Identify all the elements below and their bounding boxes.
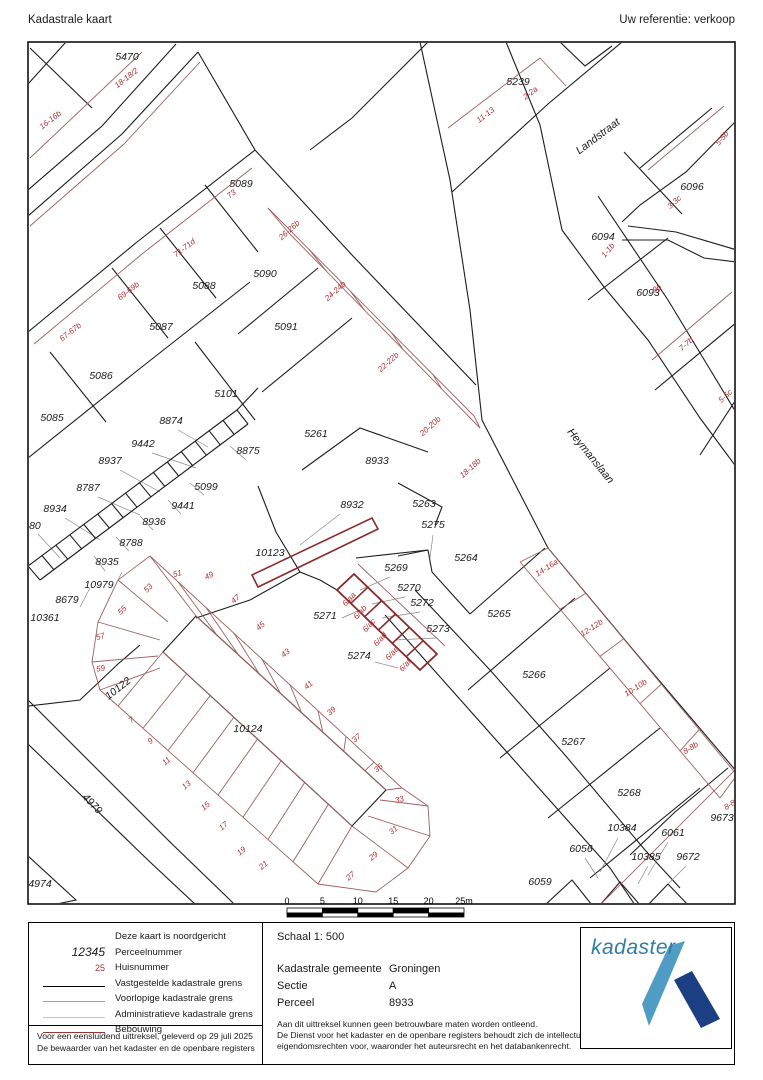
legend-item: Voorlopige kadastrale grens bbox=[29, 991, 262, 1007]
parcel-number-label: 8936 bbox=[142, 516, 166, 528]
parcel-number-label: 5268 bbox=[617, 787, 641, 799]
parcel-number-label: 980 bbox=[23, 520, 41, 532]
parcel-number-label: 8787 bbox=[76, 482, 101, 494]
parcel-number-label: 6096 bbox=[680, 181, 704, 193]
scale-bar-segment bbox=[429, 908, 464, 913]
legend-item: 25Huisnummer bbox=[29, 960, 262, 976]
disclaimer-line3: eigendomsrechten voor, waaronder het aut… bbox=[277, 1041, 592, 1052]
parcel-number-label: 4974 bbox=[28, 878, 52, 890]
parcel-number-label: 6059 bbox=[528, 876, 552, 888]
parcel-number-label: 10979 bbox=[84, 579, 113, 591]
legend-footnote: Voor een eensluidend uittreksel, gelever… bbox=[37, 1031, 255, 1054]
map-info-value: A bbox=[389, 978, 396, 995]
parcel-number-label: 5265 bbox=[487, 608, 511, 620]
parcel-number-label: 8937 bbox=[98, 455, 123, 467]
legend-box: Deze kaart is noordgericht 12345Perceeln… bbox=[28, 922, 735, 1065]
map-info-value: 8933 bbox=[389, 995, 413, 1012]
disclaimer-line2: De Dienst voor het kadaster en de openba… bbox=[277, 1030, 592, 1041]
parcel-number-label: 5263 bbox=[412, 498, 436, 510]
parcel-number-label: 5088 bbox=[192, 280, 216, 292]
scale-tick-label: 0 bbox=[284, 896, 289, 906]
legend-items: Deze kaart is noordgericht 12345Perceeln… bbox=[29, 929, 262, 1038]
parcel-number-label: 5272 bbox=[410, 597, 434, 609]
map-info-row: SectieA bbox=[277, 978, 440, 995]
parcel-number-label: 5470 bbox=[115, 51, 139, 63]
scale-bar-segment bbox=[358, 913, 393, 917]
parcel-number-label: 9672 bbox=[676, 851, 700, 863]
parcel-number-label: 6094 bbox=[591, 231, 615, 243]
scale-tick-label: 20 bbox=[424, 896, 434, 906]
parcel-number-label: 5274 bbox=[347, 650, 371, 662]
scale-bar-segment bbox=[429, 913, 464, 917]
parcel-number-label: 10124 bbox=[233, 723, 262, 735]
parcel-number-label: 8679 bbox=[55, 594, 79, 606]
legend-item-label: Vastgestelde kadastrale grens bbox=[115, 978, 242, 989]
legend-swatch bbox=[43, 980, 105, 987]
legend-footnote-line2: De bewaarder van het kadaster en de open… bbox=[37, 1043, 255, 1055]
cadastral-map: 5470523950896096609450905088609350875091… bbox=[0, 0, 763, 1080]
scale-tick-label: 5 bbox=[320, 896, 325, 906]
parcel-number-label: 5087 bbox=[149, 321, 174, 333]
parcel-number-label: 5269 bbox=[384, 562, 408, 574]
map-frame bbox=[28, 42, 735, 904]
parcel-number-label: 5091 bbox=[274, 321, 297, 333]
map-info-fields: Kadastrale gemeenteGroningenSectieAPerce… bbox=[277, 961, 440, 1012]
disclaimer-line1: Aan dit uittreksel kunnen geen betrouwba… bbox=[277, 1019, 592, 1030]
parcel-number-label: 5261 bbox=[304, 428, 327, 440]
legend-item-label: Voorlopige kadastrale grens bbox=[115, 993, 233, 1004]
map-info-label: Sectie bbox=[277, 978, 389, 995]
parcel-number-label: 9442 bbox=[131, 438, 155, 450]
legend-item-label: Huisnummer bbox=[115, 962, 169, 973]
parcel-number-label: 9441 bbox=[171, 500, 194, 512]
parcel-number-label: 6061 bbox=[661, 827, 684, 839]
scale-tick-label: 25m bbox=[455, 896, 473, 906]
disclaimer-text: Aan dit uittreksel kunnen geen betrouwba… bbox=[277, 1019, 592, 1052]
parcel-number-label: 5089 bbox=[229, 178, 253, 190]
parcel-number-label: 5267 bbox=[561, 736, 586, 748]
legend-swatch bbox=[43, 995, 105, 1002]
parcel-number-label: 10361 bbox=[30, 612, 59, 624]
parcel-number-label: 8874 bbox=[159, 415, 183, 427]
scale-tick-label: 15 bbox=[388, 896, 398, 906]
map-info-section: Schaal 1: 500 Kadastrale gemeenteGroning… bbox=[269, 923, 609, 1064]
parcel-number-label: 10385 bbox=[631, 851, 660, 863]
parcel-number-label: 5099 bbox=[194, 481, 218, 493]
parcel-number-label: 5273 bbox=[426, 623, 450, 635]
legend-swatch bbox=[43, 1011, 105, 1018]
legend-swatch: 25 bbox=[43, 963, 105, 973]
scale-bar-segment bbox=[287, 908, 322, 913]
parcel-number-label: 5086 bbox=[89, 370, 113, 382]
parcel-number-label: 5271 bbox=[313, 610, 336, 622]
legend-divider bbox=[262, 923, 263, 1064]
legend-item: Administratieve kadastrale grens bbox=[29, 1007, 262, 1023]
map-info-label: Perceel bbox=[277, 995, 389, 1012]
parcel-number-label: 5085 bbox=[40, 412, 64, 424]
parcel-number-label: 10123 bbox=[255, 547, 284, 559]
scale-bar-segment bbox=[322, 913, 357, 917]
parcel-number-label: 8934 bbox=[43, 503, 67, 515]
scale-bar-segment bbox=[322, 908, 357, 913]
parcel-number-label: 5090 bbox=[253, 268, 277, 280]
legend-item-label: Administratieve kadastrale grens bbox=[115, 1009, 253, 1020]
scale-bar-segment bbox=[358, 908, 393, 913]
parcel-number-label: 8932 bbox=[340, 499, 364, 511]
parcel-number-label: 5101 bbox=[214, 388, 237, 400]
map-info-value: Groningen bbox=[389, 961, 440, 978]
scale-text: Schaal 1: 500 bbox=[277, 931, 344, 943]
legend-swatch: 12345 bbox=[43, 945, 105, 959]
parcel-number-label: 9673 bbox=[710, 812, 734, 824]
map-info-row: Perceel8933 bbox=[277, 995, 440, 1012]
scale-bar-segment bbox=[393, 908, 428, 913]
map-info-row: Kadastrale gemeenteGroningen bbox=[277, 961, 440, 978]
legend-north-note: Deze kaart is noordgericht bbox=[29, 929, 262, 945]
kadaster-logo-text: kadaster bbox=[591, 936, 676, 960]
parcel-number-label: 5266 bbox=[522, 669, 546, 681]
parcel-number-label: 8933 bbox=[365, 455, 389, 467]
parcel-number-label: 5270 bbox=[397, 582, 421, 594]
map-info-label: Kadastrale gemeente bbox=[277, 961, 389, 978]
parcel-number-label: 5275 bbox=[421, 519, 445, 531]
parcel-number-label: 8875 bbox=[236, 445, 260, 457]
legend-footnote-line1: Voor een eensluidend uittreksel, gelever… bbox=[37, 1031, 255, 1043]
legend-item: 12345Perceelnummer bbox=[29, 945, 262, 961]
parcel-number-label: 8935 bbox=[95, 556, 119, 568]
scale-bar-segment bbox=[287, 913, 322, 917]
legend-item-label: Perceelnummer bbox=[115, 947, 182, 958]
parcel-number-label: 8788 bbox=[119, 537, 143, 549]
parcel-number-label: 5239 bbox=[506, 76, 530, 88]
parcel-number-label: 6056 bbox=[569, 843, 593, 855]
kadaster-logo: kadaster bbox=[580, 927, 732, 1049]
parcel-number-label: 5264 bbox=[454, 552, 478, 564]
parcel-number-label: 10384 bbox=[607, 822, 636, 834]
scale-tick-label: 10 bbox=[353, 896, 363, 906]
scale-bar-segment bbox=[393, 913, 428, 917]
legend-item: Vastgestelde kadastrale grens bbox=[29, 976, 262, 992]
